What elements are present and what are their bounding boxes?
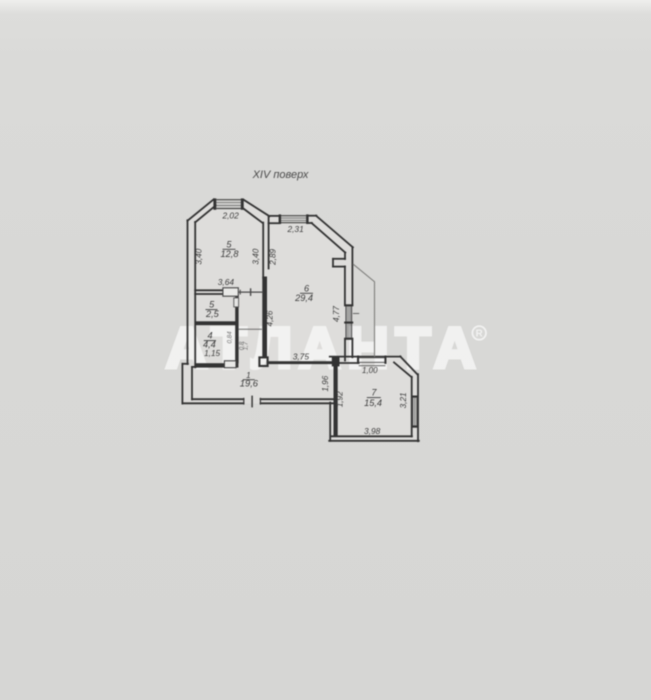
- svg-text:7: 7: [371, 388, 377, 398]
- svg-text:19,6: 19,6: [240, 378, 259, 389]
- svg-text:1,00: 1,00: [362, 366, 378, 375]
- svg-text:0,84: 0,84: [227, 331, 234, 344]
- svg-text:3,40: 3,40: [252, 248, 261, 264]
- svg-text:1,15: 1,15: [204, 349, 220, 358]
- svg-text:3,98: 3,98: [364, 426, 381, 436]
- svg-text:6: 6: [304, 283, 310, 293]
- svg-text:3,64: 3,64: [218, 277, 235, 287]
- svg-text:5: 5: [226, 239, 232, 249]
- svg-text:29,4: 29,4: [294, 293, 313, 303]
- svg-text:12,8: 12,8: [221, 249, 240, 259]
- svg-text:1,92: 1,92: [336, 391, 345, 407]
- svg-text:2,89: 2,89: [268, 248, 277, 265]
- svg-text:3,21: 3,21: [399, 392, 408, 408]
- svg-text:1,7: 1,7: [243, 341, 250, 350]
- svg-text:2,5: 2,5: [205, 309, 220, 319]
- svg-text:2,31: 2,31: [286, 224, 303, 234]
- svg-text:1,96: 1,96: [321, 375, 330, 391]
- svg-text:3,75: 3,75: [293, 351, 310, 361]
- svg-text:4,26: 4,26: [265, 310, 274, 326]
- svg-text:4,77: 4,77: [332, 306, 341, 322]
- svg-text:XIV поверх: XIV поверх: [252, 169, 309, 181]
- svg-text:R: R: [476, 329, 483, 340]
- svg-text:15,4: 15,4: [364, 398, 382, 408]
- svg-text:3,40: 3,40: [194, 248, 203, 264]
- svg-text:2,02: 2,02: [221, 210, 239, 220]
